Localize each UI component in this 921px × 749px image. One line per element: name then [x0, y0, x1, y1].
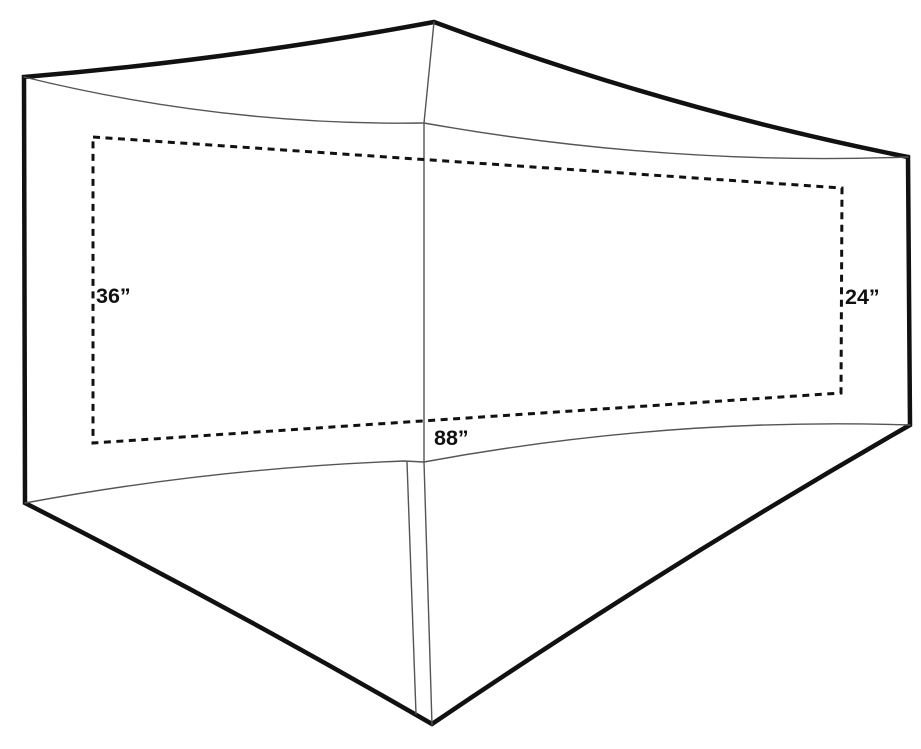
bottom-right-catenary-seam: [424, 424, 910, 462]
right-width-label: 24”: [845, 285, 880, 309]
tent-outline: [24, 22, 910, 724]
top-left-catenary-seam: [24, 77, 424, 123]
bottom-left-catenary-seam: [25, 461, 424, 503]
tent-diagram-svg: 36” 24” 88”: [0, 0, 921, 749]
tent-dimension-diagram: 36” 24” 88”: [0, 0, 921, 749]
floor-dashed-rectangle: [93, 137, 842, 443]
front-strip-left-seam: [407, 462, 416, 714]
front-strip-right-seam: [424, 462, 432, 725]
left-width-label: 36”: [96, 284, 131, 308]
length-label: 88”: [434, 426, 469, 450]
ridge-seam-line: [424, 22, 434, 462]
